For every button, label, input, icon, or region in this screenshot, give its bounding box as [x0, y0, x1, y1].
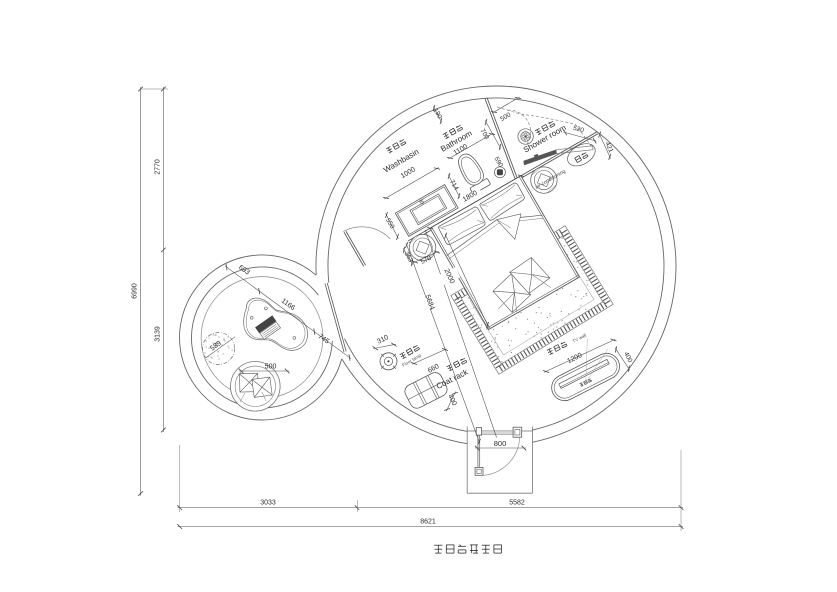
svg-text:6990: 6990: [132, 283, 139, 299]
svg-text:5582: 5582: [509, 500, 525, 507]
svg-text:8621: 8621: [420, 519, 436, 526]
svg-text:500: 500: [265, 363, 277, 370]
svg-text:3139: 3139: [154, 326, 161, 342]
svg-text:2770: 2770: [154, 159, 161, 175]
svg-text:800: 800: [494, 439, 507, 448]
svg-text:3033: 3033: [260, 500, 276, 507]
